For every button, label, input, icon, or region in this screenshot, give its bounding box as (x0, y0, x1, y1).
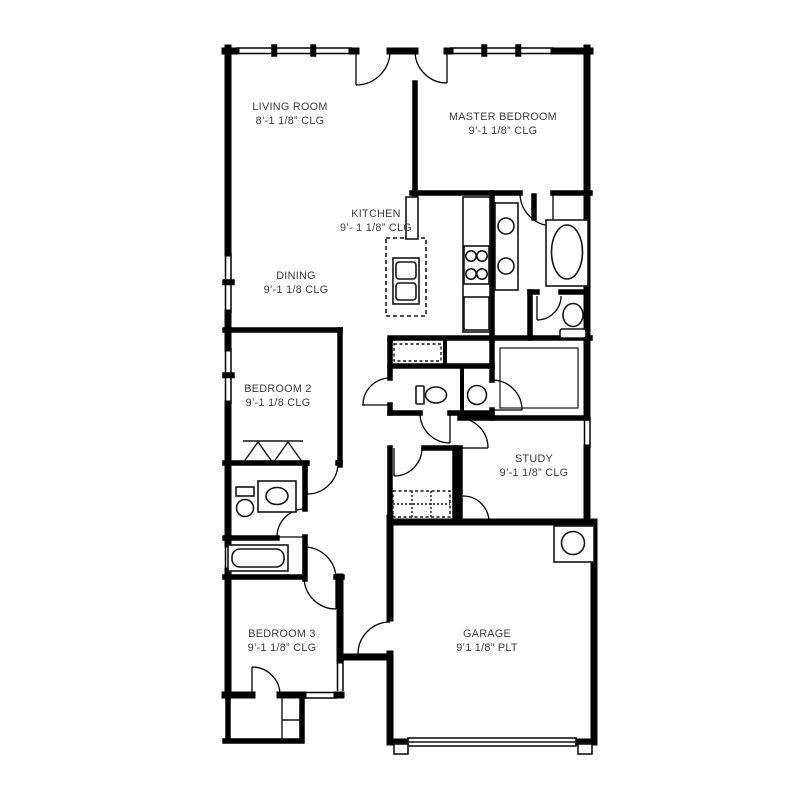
bath2-toilet-bowl (237, 500, 254, 517)
bathtub-basin (552, 225, 583, 279)
room-clg-bedroom-2: 9’-1 1/8 CLG (246, 397, 311, 409)
powder-toilet-tank (416, 386, 424, 404)
door-bath2 (277, 509, 305, 537)
master-bath-fixtures (495, 203, 588, 408)
room-label-dining: DINING (276, 270, 316, 282)
room-clg-study: 9’-1 1/8” CLG (500, 467, 569, 479)
vanity-sink (498, 258, 514, 274)
window-study-right (585, 417, 591, 448)
room-clg-dining: 9’-1 1/8 CLG (264, 284, 329, 296)
water-heater (562, 532, 585, 555)
linen-shelves-dashed (394, 344, 441, 361)
room-label-living-room: LIVING ROOM (252, 101, 327, 113)
burner (466, 251, 476, 261)
door-toilet-room (537, 296, 561, 320)
wall-bedroom3-closet (225, 695, 302, 741)
floor-plan: LIVING ROOM 8’-1 1/8” CLG MASTER BEDROOM… (0, 0, 800, 800)
bath2-fixtures (228, 481, 296, 571)
bath2-tub-basin (232, 549, 284, 567)
door-bedroom3-closet (252, 667, 280, 695)
room-label-garage: GARAGE (463, 628, 511, 640)
window-living-top (236, 45, 352, 56)
door-bedroom3-a (304, 547, 336, 577)
door-entry (356, 51, 390, 85)
door-bedroom2 (307, 463, 338, 494)
burner (477, 251, 487, 261)
burner (466, 269, 476, 279)
powder-toilet-bowl (426, 387, 447, 403)
door-bedroom3-b (304, 577, 336, 609)
room-label-kitchen: KITCHEN (351, 208, 401, 220)
door-study-closet (463, 496, 489, 522)
bath2-sink (266, 488, 288, 505)
master-toilet-bowl (563, 304, 583, 327)
bifold-closet-doors (243, 442, 303, 463)
room-clg-kitchen: 9’- 1 1/8” CLG (340, 222, 412, 234)
door-garage-entry (358, 622, 390, 654)
garage-step-left (394, 744, 408, 754)
range-oven-door (396, 262, 416, 279)
master-toilet-tank (560, 329, 586, 338)
window-bedroom3-east (338, 660, 344, 691)
room-clg-living-room: 8’-1 1/8” CLG (256, 115, 325, 127)
utility-shelf-dividers (393, 491, 450, 517)
refrigerator (464, 297, 489, 330)
garage-step-right (578, 744, 592, 754)
room-label-bedroom-3: BEDROOM 3 (248, 628, 316, 640)
kitchen-fixtures (386, 197, 490, 332)
door-study (460, 418, 488, 448)
burner (477, 269, 487, 279)
window-dining-left (223, 253, 234, 313)
window-master-top (450, 45, 554, 56)
door-powder-bath (420, 413, 450, 443)
garage-fixtures (394, 526, 594, 754)
room-clg-bedroom-3: 9’-1 1/8” CLG (248, 642, 317, 654)
master-double-vanity (495, 203, 518, 290)
vanity-sink (498, 218, 514, 234)
room-label-master-bedroom: MASTER BEDROOM (449, 111, 557, 123)
range-drawer (396, 283, 416, 300)
window-bedroom2-left (223, 348, 234, 404)
room-label-study: STUDY (515, 453, 553, 465)
room-clg-garage: 9’1 1/8” PLT (456, 642, 518, 654)
room-clg-master-bedroom: 9’-1 1/8” CLG (469, 125, 538, 137)
windows (223, 45, 590, 698)
door-hall (362, 378, 390, 405)
floor-plan-canvas: LIVING ROOM 8’-1 1/8” CLG MASTER BEDROOM… (0, 0, 800, 800)
door-master-bedroom (415, 51, 447, 83)
door-utility (394, 448, 422, 476)
door-master-closet (492, 380, 522, 410)
window-bedroom3-bottom (303, 693, 337, 699)
room-labels: LIVING ROOM 8’-1 1/8” CLG MASTER BEDROOM… (244, 101, 568, 654)
door-swings (252, 51, 561, 695)
room-label-bedroom-2: BEDROOM 2 (244, 383, 312, 395)
powder-bath-fixtures (416, 386, 487, 405)
powder-round-sink (468, 386, 487, 405)
bath2-toilet-tank (236, 487, 254, 496)
bedroom3-closet-dividers (282, 697, 302, 741)
master-closet-shelf-line (500, 348, 578, 408)
